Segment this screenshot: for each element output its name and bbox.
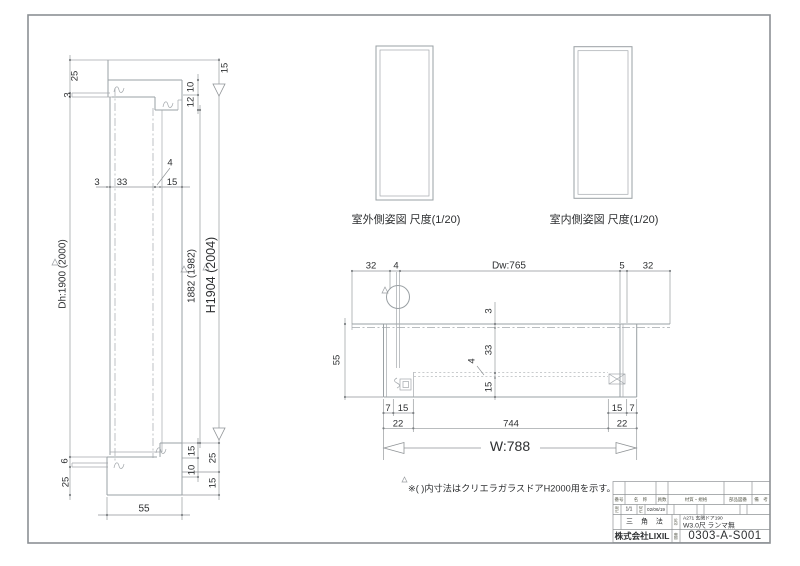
- sill-stop-hook: [156, 448, 166, 454]
- note: ※( )内寸法はクリエラガラスドアH2000用を示す。: [402, 477, 616, 494]
- sheet-border: [28, 15, 770, 543]
- tb-company: 株式会社LIXIL: [615, 531, 670, 541]
- dim-15-depth: 15: [484, 382, 495, 393]
- tb-projection: 三 角 法: [626, 517, 666, 526]
- dim-33-depth: 33: [484, 345, 495, 356]
- tb-header-no: 番号: [615, 496, 624, 503]
- dim-4-top: 4: [393, 261, 398, 272]
- dim-25-br: 25: [208, 453, 219, 464]
- dim-25-top: 25: [70, 71, 81, 82]
- dim-55: 55: [138, 504, 150, 515]
- dim-7-left: 7: [385, 403, 390, 414]
- dim-15-top: 15: [220, 63, 231, 74]
- sill-clip-hook: [114, 463, 124, 469]
- tb-header-remarks: 備 考: [754, 496, 768, 503]
- drawing-canvas: 25 3 15 10 12 4 3 33 15 Dh:1900 (2000) 1…: [0, 0, 800, 566]
- leader-4-plan: [477, 366, 484, 375]
- head-stop-hook: [163, 102, 173, 108]
- outside-elevation-outer: [376, 46, 433, 200]
- dim-22-left: 22: [393, 419, 404, 430]
- dim-10: 10: [186, 82, 197, 93]
- dim-32-left: 32: [366, 261, 377, 272]
- dim-3-top: 3: [63, 92, 74, 97]
- dim-overall-height: H1904 (2004): [204, 237, 218, 313]
- dim-12: 12: [186, 97, 197, 108]
- arrow-w-right: [616, 443, 636, 454]
- dim-4-depth: 4: [467, 358, 478, 363]
- tb-header-qty: 員数: [658, 496, 667, 503]
- head-clip-hook: [114, 87, 124, 93]
- dim-32-right: 32: [643, 261, 654, 272]
- dim-15-right: 15: [612, 403, 623, 414]
- dim-15-br1: 15: [187, 446, 198, 457]
- latch-strike-box: [400, 379, 411, 390]
- dim-5-top: 5: [619, 261, 624, 272]
- tb-drawing-number: 0303-A-S001: [688, 530, 761, 542]
- dim-744: 744: [503, 419, 519, 430]
- dim-inner-height: 1882 (1982): [187, 249, 198, 303]
- tb-dwgno-label: 図番: [673, 532, 678, 540]
- dim-33-mid: 33: [117, 177, 128, 188]
- tb-header-material: 材質・規格: [685, 496, 708, 503]
- dim-6-bottom: 6: [60, 458, 71, 463]
- dim-10-br: 10: [187, 465, 198, 476]
- dim-15-mid: 15: [167, 177, 178, 188]
- tb-header-partno: 部品図番: [729, 496, 747, 503]
- tb-name-label: 名称: [673, 518, 678, 526]
- vertical-section: 25 3 15 10 12 4 3 33 15 Dh:1900 (2000) 1…: [52, 55, 231, 520]
- dim-22-right: 22: [617, 419, 628, 430]
- arrow-w-left: [384, 443, 404, 454]
- title-block: 番号 名 称 員数 材質・規格 部品図番 備 考 尺度 1/1 作成 02/06…: [613, 482, 770, 543]
- horizontal-section: 32 4 Dw:765 5 32 3 33 4 15 55 7 15 15 7 …: [332, 261, 672, 461]
- dim-7-right: 7: [629, 403, 634, 414]
- elevation-views: 室外側姿図 尺度(1/20) 室内側姿図 尺度(1/20): [352, 46, 659, 226]
- arrow-bottom: [213, 428, 225, 440]
- tb-date-value: 02/06/19: [647, 507, 665, 512]
- tb-date-label: 作成: [638, 506, 643, 514]
- left-jamb-hook: [395, 378, 400, 388]
- dim-15-br2: 15: [208, 478, 219, 489]
- dim-55-plan: 55: [332, 355, 343, 366]
- inside-elevation-label: 室内側姿図 尺度(1/20): [550, 212, 659, 226]
- arrow-top: [213, 84, 225, 96]
- dim-overall-width: W:788: [490, 438, 530, 454]
- latch-strike-inner: [403, 382, 409, 388]
- outside-elevation-label: 室外側姿図 尺度(1/20): [352, 212, 461, 226]
- outside-elevation-inner: [380, 50, 429, 196]
- tb-product-line2: W3.0尺 ランマ無: [683, 520, 735, 529]
- inside-elevation-outer: [574, 47, 632, 199]
- dim-4-mid: 4: [167, 158, 172, 169]
- revision-mark: [402, 477, 407, 482]
- dim-3-depth: 3: [484, 308, 495, 313]
- dim-3-mid: 3: [94, 177, 99, 188]
- tb-scale-label: 尺度: [614, 506, 619, 514]
- inside-elevation-inner: [578, 51, 628, 195]
- dim-door-height: Dh:1900 (2000): [58, 239, 69, 309]
- drawing-sheet: 25 3 15 10 12 4 3 33 15 Dh:1900 (2000) 1…: [0, 0, 800, 566]
- tb-product-line1: A271 玄関ドア190: [683, 515, 723, 522]
- tb-scale-value: 1/1: [626, 507, 633, 513]
- note-text: ※( )内寸法はクリエラガラスドアH2000用を示す。: [408, 483, 616, 494]
- tb-header-name: 名 称: [634, 496, 648, 503]
- dim-door-width: Dw:765: [492, 261, 526, 272]
- dim-15-left: 15: [398, 403, 409, 414]
- dim-25-bl: 25: [61, 477, 72, 488]
